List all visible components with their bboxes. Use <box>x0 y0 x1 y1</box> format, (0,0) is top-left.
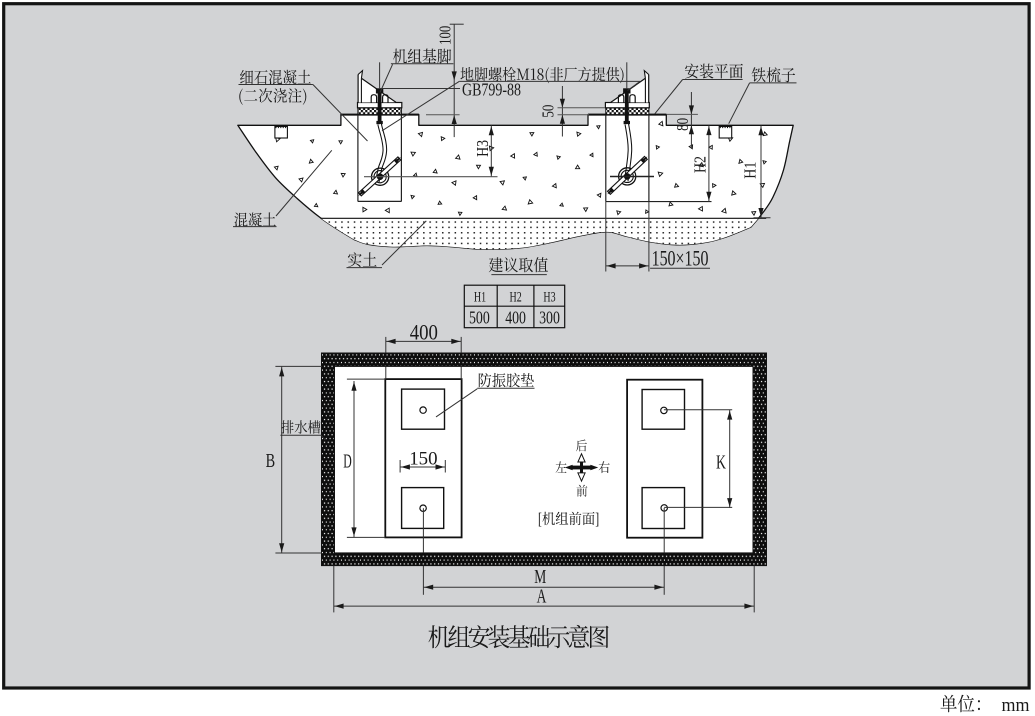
svg-text:150: 150 <box>409 449 437 470</box>
svg-text:150×150: 150×150 <box>652 245 709 270</box>
svg-text:400: 400 <box>410 319 438 344</box>
svg-text:GB799-88: GB799-88 <box>462 79 521 99</box>
svg-text:H2: H2 <box>510 290 522 306</box>
svg-text:A: A <box>537 586 547 608</box>
svg-text:50: 50 <box>539 105 558 118</box>
svg-text:B: B <box>266 450 276 472</box>
svg-text:80: 80 <box>673 118 692 131</box>
svg-text:H2: H2 <box>690 156 709 173</box>
svg-text:400: 400 <box>505 307 526 327</box>
svg-text:500: 500 <box>469 307 490 327</box>
svg-text:100: 100 <box>435 26 454 45</box>
svg-text:mm: mm <box>1002 695 1030 716</box>
svg-text:H3: H3 <box>473 140 492 157</box>
svg-text:K: K <box>716 452 726 474</box>
svg-text:D: D <box>343 451 352 473</box>
svg-text:H1: H1 <box>741 162 760 179</box>
svg-text:300: 300 <box>539 307 560 327</box>
svg-text:H1: H1 <box>474 290 486 306</box>
svg-text:H3: H3 <box>543 290 555 306</box>
